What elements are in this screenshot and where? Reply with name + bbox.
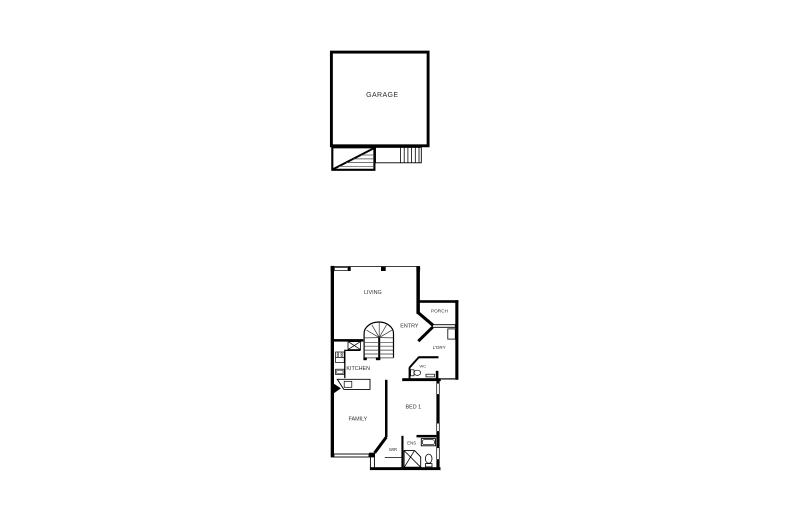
svg-text:LIVING: LIVING <box>364 290 382 296</box>
svg-text:ENS: ENS <box>407 440 416 445</box>
svg-text:FAMILY: FAMILY <box>349 416 368 422</box>
svg-text:GARAGE: GARAGE <box>366 92 398 99</box>
svg-text:L'DRY: L'DRY <box>433 345 446 350</box>
svg-text:BED 1: BED 1 <box>406 405 422 411</box>
svg-text:WIR: WIR <box>389 447 397 452</box>
svg-text:WC: WC <box>419 363 426 368</box>
svg-text:ENTRY: ENTRY <box>400 324 419 330</box>
svg-text:PORCH: PORCH <box>431 308 448 313</box>
svg-text:KITCHEN: KITCHEN <box>346 366 370 372</box>
